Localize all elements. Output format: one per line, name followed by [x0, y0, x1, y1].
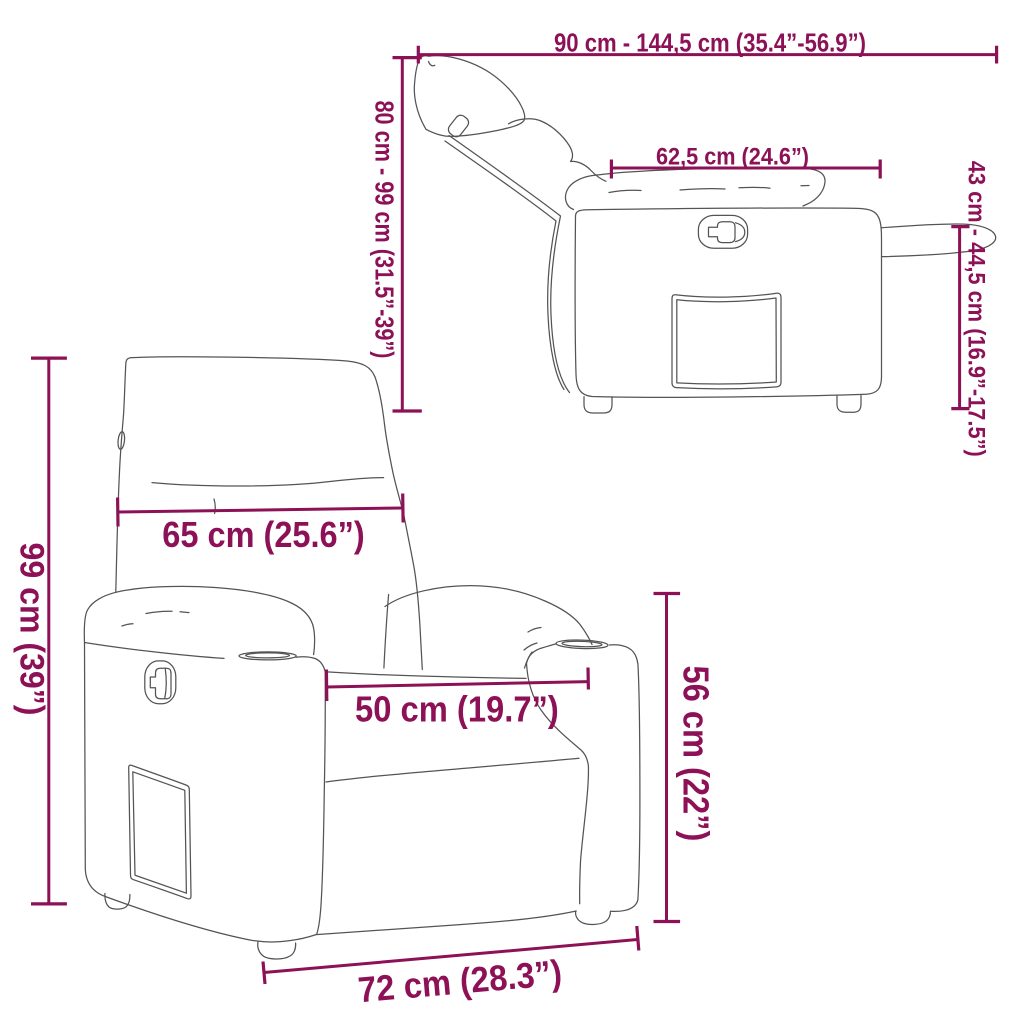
svg-text:99 cm (39”): 99 cm (39”): [13, 543, 51, 716]
svg-text:43 cm - 44,5 cm (16.9”-17.5”): 43 cm - 44,5 cm (16.9”-17.5”): [962, 161, 989, 457]
svg-text:90 cm - 144,5 cm (35.4”-56.9”): 90 cm - 144,5 cm (35.4”-56.9”): [554, 28, 866, 58]
svg-text:80 cm - 99 cm (31.5”-39”): 80 cm - 99 cm (31.5”-39”): [369, 101, 399, 359]
svg-text:62,5 cm (24.6”): 62,5 cm (24.6”): [656, 143, 809, 170]
svg-text:65 cm (25.6”): 65 cm (25.6”): [162, 514, 364, 555]
svg-text:56 cm (22”): 56 cm (22”): [676, 666, 717, 842]
svg-text:50 cm (19.7”): 50 cm (19.7”): [355, 689, 559, 730]
